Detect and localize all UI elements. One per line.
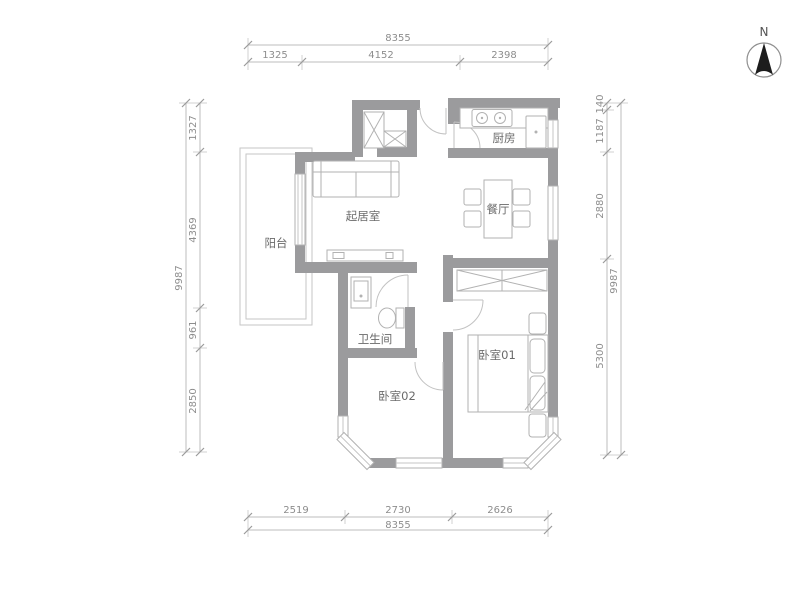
dimension-lines-bottom: 2519 2730 2626 8355: [244, 505, 552, 537]
dim-bottom-total: 8355: [385, 520, 410, 531]
dim-bottom-seg-2: 2626: [487, 505, 512, 516]
dimension-lines-left: 9987 1327 4369 961 2850: [174, 99, 207, 456]
dim-right-seg-0: 140: [595, 94, 606, 113]
dim-left-seg-1: 4369: [188, 217, 199, 242]
dim-right-seg-3: 5300: [595, 343, 606, 368]
sofa: [313, 161, 399, 197]
room-label-dining: 餐厅: [487, 202, 510, 216]
room-label-bedroom-01: 卧室01: [478, 348, 516, 362]
nightstand: [529, 414, 546, 437]
north-label: N: [760, 25, 769, 39]
dimension-lines-top: 8355 1325 4152 2398: [244, 33, 552, 70]
dim-left-seg-0: 1327: [188, 115, 199, 140]
dim-top-seg-0: 1325: [262, 50, 287, 61]
bedroom01-wardrobe: [457, 270, 547, 291]
floor-plan-page: 起居室 餐厅 厨房 阳台 卫生间 卧室01 卧室02 8355 1325 415…: [0, 0, 800, 600]
dim-top-total: 8355: [385, 33, 410, 44]
dim-left-seg-2: 961: [188, 320, 199, 339]
room-label-bedroom-02: 卧室02: [378, 389, 416, 403]
tv-stand: [327, 250, 403, 261]
north-compass: N: [747, 25, 781, 77]
bed: [468, 313, 548, 437]
dim-bottom-seg-1: 2730: [385, 505, 410, 516]
dim-bottom-seg-0: 2519: [283, 505, 308, 516]
dim-right-seg-2: 2880: [595, 193, 606, 218]
dim-top-seg-2: 2398: [491, 50, 516, 61]
room-label-balcony: 阳台: [265, 236, 288, 250]
room-label-living: 起居室: [346, 209, 381, 223]
nightstand: [529, 313, 546, 334]
dim-left-total: 9987: [174, 265, 185, 290]
dimension-lines-right: 140 1187 2880 5300 9987: [595, 94, 628, 459]
toilet: [379, 308, 396, 328]
dim-top-seg-1: 4152: [368, 50, 393, 61]
room-label-kitchen: 厨房: [493, 131, 516, 145]
room-label-bathroom: 卫生间: [358, 332, 393, 346]
dim-right-total: 9987: [609, 268, 620, 293]
bathroom-fixtures: [351, 277, 404, 328]
pillow: [530, 339, 545, 373]
floor-plan-svg: 起居室 餐厅 厨房 阳台 卫生间 卧室01 卧室02 8355 1325 415…: [0, 0, 800, 600]
dim-right-seg-1: 1187: [595, 118, 606, 143]
entry-closet: [364, 112, 406, 148]
dim-left-seg-3: 2850: [188, 388, 199, 413]
